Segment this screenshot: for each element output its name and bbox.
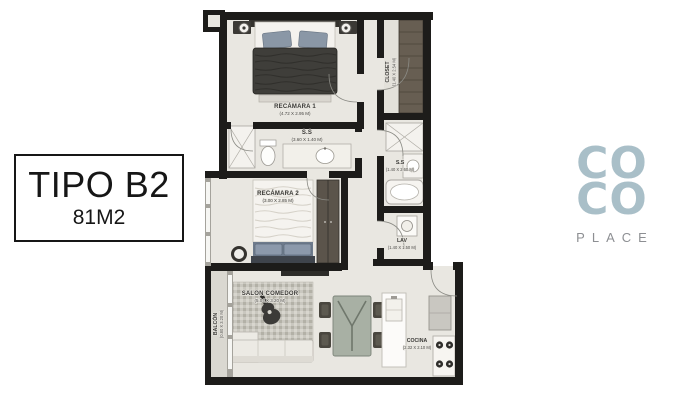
room-dims-ss1: (3.60 X 1.40 M) [291, 137, 323, 142]
room-label-closet: CLOSET [385, 61, 391, 83]
room-label-salon: SALON COMEDOR [242, 291, 299, 297]
room-dims-recamara1: (4.72 X 2.95 M) [279, 111, 311, 116]
room-label-recamara1: RECÁMARA 1 [274, 103, 316, 110]
coco-place-logo: CO CO PLACE [553, 146, 671, 245]
room-dims-balcon: (0.80 X 3.20 M) [219, 309, 224, 338]
logo-subtitle: PLACE [559, 230, 671, 245]
flyer-page: TIPO B2 81M2 [0, 0, 680, 400]
room-dims-closet: (1.40 X 2.54 M) [392, 57, 397, 86]
floor-plan: RECÁMARA 1 (4.72 X 2.95 M) CLOSET (1.40 … [195, 8, 465, 396]
room-dims-recamara2: (3.00 X 2.85 M) [262, 198, 294, 203]
room-label-ss1: S.S [302, 130, 312, 136]
room-dims-lav: (1.40 X 1.50 M) [388, 245, 417, 250]
room-label-balcon: BALCÓN [211, 313, 219, 335]
window-wall-balcony [227, 271, 233, 377]
type-info-box: TIPO B2 81M2 [14, 154, 184, 242]
room-dims-ss2: (1.40 X 2.60 M) [386, 167, 415, 172]
unit-area-label: 81M2 [73, 206, 126, 230]
room-label-recamara2: RECÁMARA 2 [257, 190, 299, 197]
unit-type-label: TIPO B2 [28, 166, 170, 204]
room-label-lav: LAV [397, 238, 408, 244]
room-dims-cocina: (2.32 X 2.10 M) [403, 345, 432, 350]
room-dims-salon: (5.04 X 3.20 M) [254, 298, 286, 303]
window-wall-bedroom2 [205, 178, 211, 266]
logo-line-2: CO [553, 182, 671, 218]
room-label-cocina: COCINA [407, 338, 428, 344]
structural-column [203, 10, 225, 32]
laundry-washer [397, 216, 417, 236]
room-label-ss2: S.S [396, 160, 405, 166]
